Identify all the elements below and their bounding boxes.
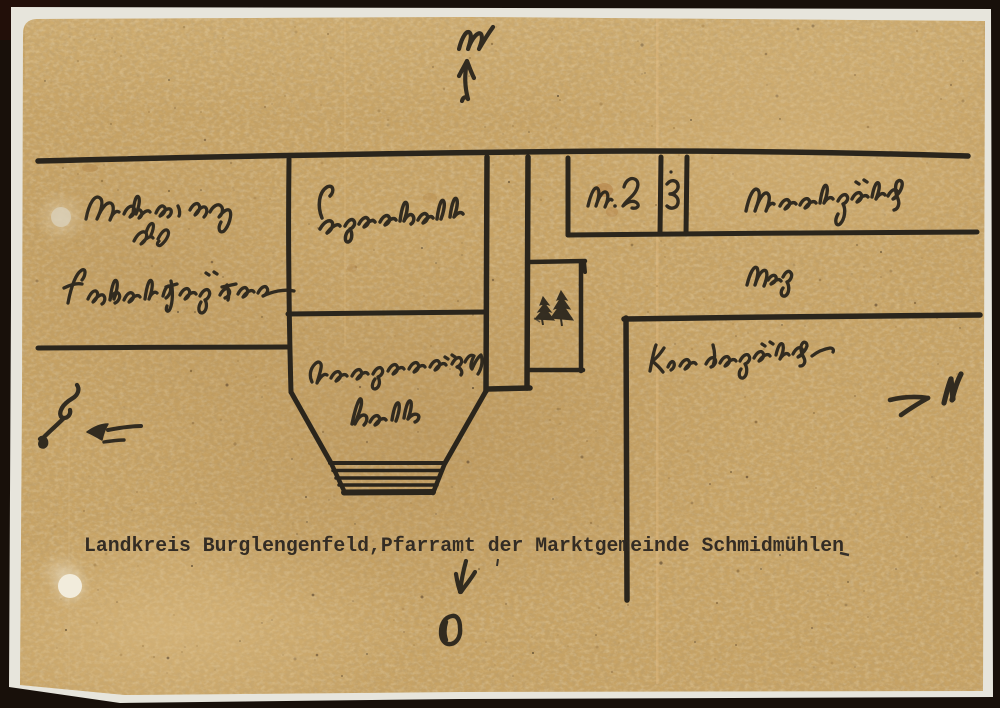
svg-text:Landkreis Burglengenfeld,Pfarr: Landkreis Burglengenfeld,Pfarramt der Ma… [84,535,844,558]
